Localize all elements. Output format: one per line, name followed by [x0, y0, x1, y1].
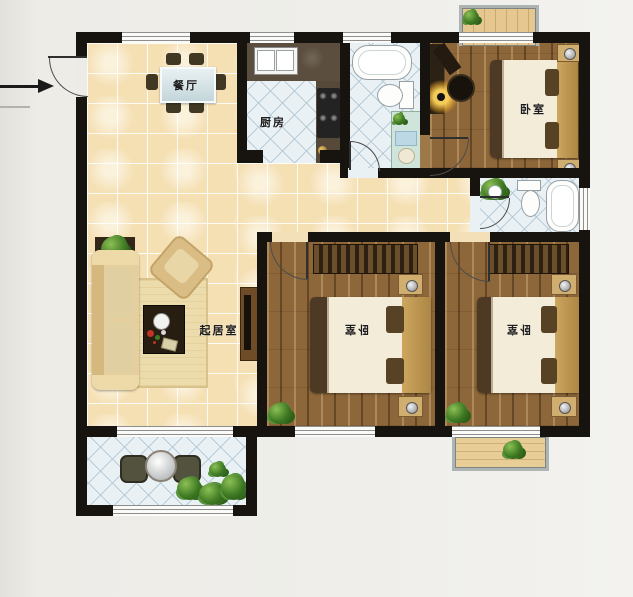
bathtub2-inner [551, 185, 574, 227]
bath-towel [395, 131, 417, 146]
stove-burner [319, 92, 327, 100]
sofa-back [92, 250, 104, 390]
bed-pillow [541, 306, 556, 333]
kitchen-sink-basin [257, 50, 275, 71]
balcony-right-plant [503, 441, 523, 459]
balcony-railing [113, 505, 233, 516]
balcony-door [452, 426, 540, 437]
bed-blanket [310, 297, 327, 393]
wall [76, 43, 87, 437]
bathtub-inner [358, 50, 406, 75]
balcony-door [117, 426, 233, 437]
desk-lamp [437, 93, 445, 101]
balcony-top-plant [463, 10, 479, 25]
bedroom-right-door-opening [450, 232, 490, 242]
armchair-cushion [162, 247, 200, 285]
stove-burner [319, 114, 327, 122]
wall [420, 43, 430, 135]
bed-headboard [555, 297, 579, 393]
wall [490, 232, 590, 242]
bedroom-mid-plant [268, 403, 292, 424]
coffee-table-flowers [147, 330, 154, 337]
entry-door-arc [49, 58, 88, 97]
bed-headboard [557, 60, 578, 158]
floor-plan: 餐厅 厨房 卧室 起居室 卧室 卧室 [0, 0, 633, 597]
wall [257, 232, 272, 242]
bedroom-top-label: 卧室 [509, 101, 557, 117]
bed-blanket [477, 297, 491, 393]
bed-fold [491, 297, 493, 393]
balcony-right-floor [452, 437, 549, 471]
bedroom-right-label: 卧室 [494, 322, 542, 338]
coffee-table-plate [153, 313, 170, 330]
sofa-arm [92, 375, 139, 390]
nightstand [398, 396, 423, 417]
balcony-door [459, 32, 533, 43]
balcony-plants [221, 474, 246, 500]
bed [477, 297, 579, 393]
dining-chair [166, 53, 181, 65]
living-room-label: 起居室 [190, 322, 248, 338]
balcony-chair [120, 455, 148, 483]
desk-chair [447, 74, 475, 102]
bed-headboard [402, 297, 431, 393]
wall [470, 178, 480, 196]
bedroom-mid-door-opening [272, 232, 308, 242]
dining-chair [146, 74, 158, 90]
nightstand [398, 274, 423, 295]
balcony-table [145, 450, 177, 482]
window [122, 32, 190, 43]
window [250, 32, 294, 43]
sofa-cushion [106, 268, 134, 318]
bath-shelf-plant [393, 113, 405, 125]
bed [310, 297, 431, 393]
bath2-door-opening [470, 196, 480, 232]
bed-fold [502, 60, 504, 158]
kitchen-sink-basin [276, 50, 294, 71]
nightstand [551, 274, 577, 295]
window [343, 32, 391, 43]
balcony-plants [209, 462, 226, 477]
dining-room-label: 餐厅 [162, 77, 210, 93]
bath-jar [398, 148, 415, 164]
wall [435, 242, 445, 426]
nightstand [557, 44, 580, 62]
bed-pillow [386, 306, 404, 333]
wall [237, 150, 263, 163]
sofa-arm [92, 250, 139, 265]
window [295, 426, 375, 437]
wall [257, 242, 267, 426]
nightstand [551, 396, 577, 417]
wardrobe [488, 244, 569, 274]
bed-pillow [545, 122, 558, 149]
sofa [92, 250, 139, 390]
toilet2-bowl [521, 190, 540, 217]
wall [246, 437, 257, 516]
stove-burner [330, 92, 338, 100]
entry-arrow-head [38, 79, 54, 93]
stove-burner [330, 114, 338, 122]
wall [308, 232, 450, 242]
bed-pillow [545, 69, 558, 96]
bed-fold [327, 297, 329, 393]
kitchen-label: 厨房 [249, 114, 297, 130]
bedroom-right-plant [446, 403, 468, 423]
dining-chair [189, 53, 204, 65]
bed-blanket [490, 60, 502, 158]
bed-pillow [386, 358, 404, 385]
bedroom-mid-label: 卧室 [332, 322, 380, 338]
toilet-bowl [377, 84, 403, 107]
bedroom-top-door-opening [420, 135, 430, 168]
wall [237, 43, 247, 163]
balcony-plants [177, 477, 202, 500]
wall-leader-line [0, 106, 30, 108]
bed-pillow [541, 358, 556, 385]
window [579, 188, 590, 230]
wardrobe [313, 244, 418, 274]
